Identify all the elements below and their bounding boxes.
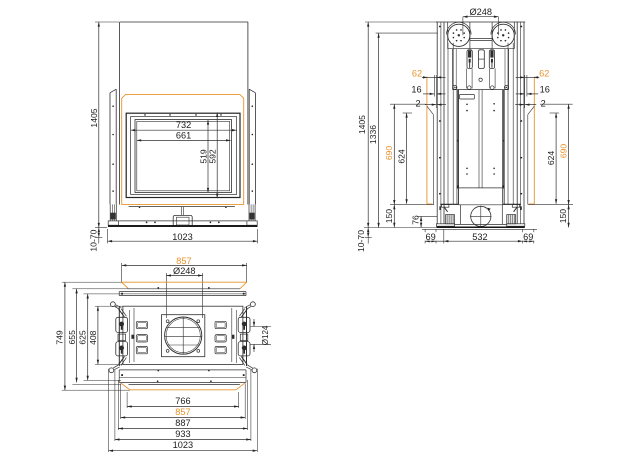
svg-text:1023: 1023 bbox=[173, 440, 193, 450]
svg-text:857: 857 bbox=[176, 256, 191, 266]
svg-text:2: 2 bbox=[541, 98, 546, 108]
svg-text:2: 2 bbox=[415, 98, 420, 108]
svg-text:1405: 1405 bbox=[89, 108, 99, 127]
svg-text:933: 933 bbox=[175, 429, 190, 439]
svg-text:10-70: 10-70 bbox=[89, 229, 99, 251]
svg-text:408: 408 bbox=[88, 330, 98, 345]
svg-text:690: 690 bbox=[559, 144, 569, 159]
svg-text:690: 690 bbox=[384, 146, 394, 161]
svg-text:62: 62 bbox=[539, 69, 549, 79]
svg-text:1023: 1023 bbox=[172, 232, 192, 242]
svg-text:Ø248: Ø248 bbox=[469, 7, 491, 17]
svg-text:532: 532 bbox=[472, 232, 487, 242]
svg-text:1336: 1336 bbox=[368, 125, 378, 144]
svg-text:Ø248: Ø248 bbox=[173, 266, 195, 276]
svg-text:10-70: 10-70 bbox=[356, 230, 366, 252]
svg-text:62: 62 bbox=[412, 69, 422, 79]
svg-text:766: 766 bbox=[175, 396, 190, 406]
svg-text:69: 69 bbox=[523, 232, 533, 242]
svg-text:624: 624 bbox=[397, 149, 407, 164]
svg-text:732: 732 bbox=[176, 120, 191, 130]
svg-text:16: 16 bbox=[411, 85, 421, 95]
svg-text:749: 749 bbox=[55, 330, 65, 345]
svg-text:592: 592 bbox=[208, 149, 218, 164]
svg-text:16: 16 bbox=[540, 85, 550, 95]
svg-text:625: 625 bbox=[77, 330, 87, 345]
svg-text:150: 150 bbox=[384, 209, 394, 224]
svg-text:857: 857 bbox=[175, 407, 190, 417]
svg-text:1405: 1405 bbox=[357, 115, 367, 134]
svg-text:661: 661 bbox=[176, 130, 191, 140]
svg-text:150: 150 bbox=[558, 209, 568, 224]
svg-text:655: 655 bbox=[67, 330, 77, 345]
svg-text:887: 887 bbox=[175, 418, 190, 428]
svg-text:624: 624 bbox=[546, 151, 556, 166]
svg-text:76: 76 bbox=[411, 215, 421, 225]
svg-text:Ø124: Ø124 bbox=[261, 325, 270, 345]
svg-text:69: 69 bbox=[425, 232, 435, 242]
